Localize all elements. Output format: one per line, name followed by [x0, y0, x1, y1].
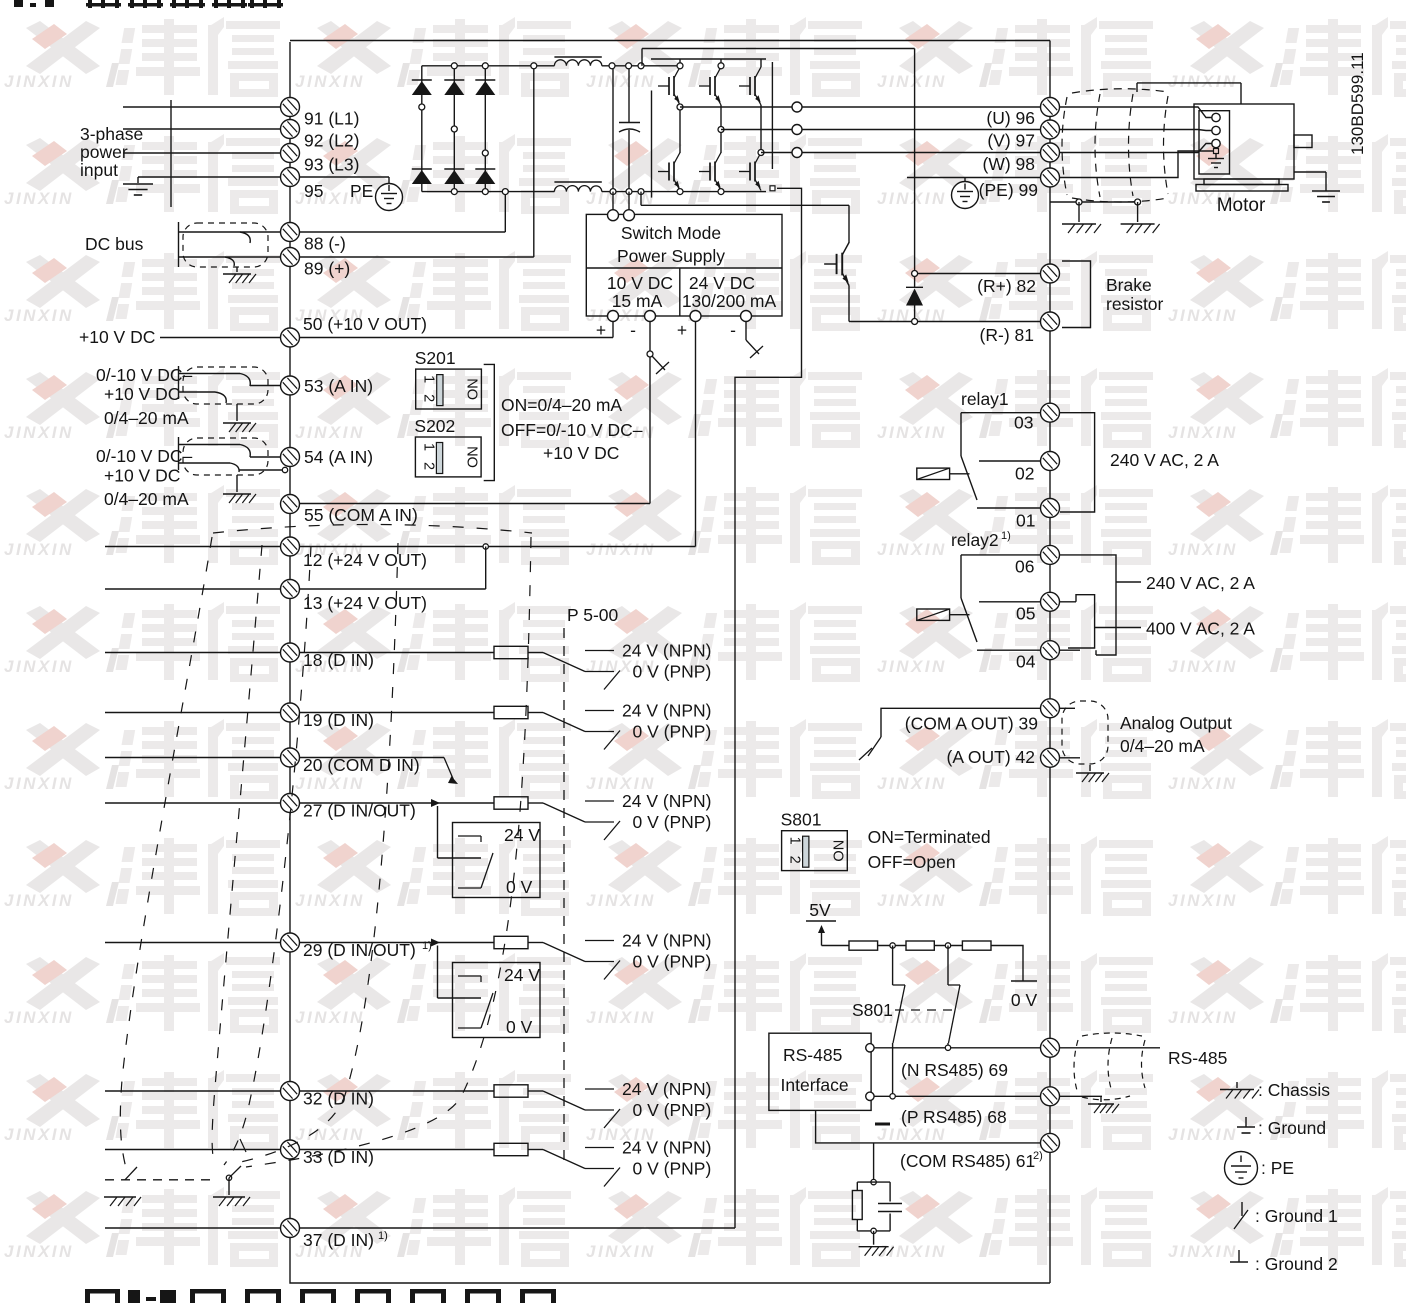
svg-text:S801: S801	[852, 1000, 893, 1020]
svg-text:13 (+24 V OUT): 13 (+24 V OUT)	[303, 593, 427, 613]
svg-text:1): 1)	[1001, 530, 1011, 542]
svg-text:20 (COM D IN): 20 (COM D IN)	[303, 755, 420, 775]
svg-text:24 V (NPN): 24 V (NPN)	[622, 791, 711, 811]
svg-text:PE: PE	[350, 181, 373, 201]
svg-text:(R-) 81: (R-) 81	[980, 325, 1034, 345]
svg-text:1): 1)	[378, 1230, 388, 1242]
svg-text:ON: ON	[832, 840, 848, 862]
svg-text:1: 1	[787, 837, 803, 845]
svg-text:-: -	[630, 320, 636, 340]
svg-text:5V: 5V	[809, 900, 831, 920]
svg-text:89 (+): 89 (+)	[304, 259, 350, 279]
svg-text:relay1: relay1	[961, 389, 1009, 409]
svg-text:: Ground: : Ground	[1258, 1118, 1326, 1138]
svg-text:12 (+24 V OUT): 12 (+24 V OUT)	[303, 550, 427, 570]
svg-text:19 (D IN): 19 (D IN)	[303, 710, 374, 730]
svg-text:RS-485: RS-485	[1168, 1048, 1227, 1068]
svg-text:Analog Output: Analog Output	[1120, 713, 1232, 733]
svg-text:55 (COM A IN): 55 (COM A IN)	[304, 505, 418, 525]
svg-text:OFF=0/-10 V DC–: OFF=0/-10 V DC–	[501, 420, 643, 440]
svg-text:: Ground 2: : Ground 2	[1255, 1254, 1338, 1274]
svg-text:50 (+10 V OUT): 50 (+10 V OUT)	[303, 314, 427, 334]
svg-text:RS-485: RS-485	[783, 1045, 842, 1065]
svg-text:04: 04	[1016, 652, 1036, 672]
svg-text:05: 05	[1016, 604, 1035, 624]
svg-text:+10 V DC: +10 V DC	[79, 327, 155, 347]
svg-text:32 (D IN): 32 (D IN)	[303, 1089, 374, 1109]
svg-text:DC bus: DC bus	[85, 234, 144, 254]
svg-text:93 (L3): 93 (L3)	[304, 155, 359, 175]
svg-text:130/200 mA: 130/200 mA	[682, 291, 777, 311]
svg-text:24 V: 24 V	[504, 825, 540, 845]
svg-text:ON=0/4–20 mA: ON=0/4–20 mA	[501, 395, 622, 415]
svg-text:(P RS485) 68: (P RS485) 68	[901, 1107, 1007, 1127]
svg-text:(R+) 82: (R+) 82	[977, 276, 1036, 296]
svg-text:88 (-): 88 (-)	[304, 234, 346, 254]
svg-text:+: +	[677, 320, 687, 340]
svg-text:OFF=Open: OFF=Open	[868, 852, 956, 872]
svg-text:95: 95	[304, 181, 323, 201]
svg-text:: Chassis: : Chassis	[1258, 1080, 1330, 1100]
svg-text:2): 2)	[1033, 1150, 1043, 1162]
svg-text:Interface: Interface	[781, 1075, 849, 1095]
svg-text:0 V: 0 V	[1011, 990, 1038, 1010]
svg-text:3-phase: 3-phase	[80, 124, 143, 144]
svg-text:130BD599.11: 130BD599.11	[1348, 52, 1367, 155]
svg-text:24 V (NPN): 24 V (NPN)	[622, 1138, 711, 1158]
svg-text:0/4–20 mA: 0/4–20 mA	[104, 408, 189, 428]
svg-text:ON: ON	[465, 446, 481, 468]
svg-text:15 mA: 15 mA	[612, 291, 663, 311]
svg-text:91 (L1): 91 (L1)	[304, 109, 359, 129]
svg-text:1): 1)	[422, 940, 432, 952]
svg-text:relay2: relay2	[951, 530, 999, 550]
svg-text:(COM A OUT) 39: (COM A OUT) 39	[905, 714, 1038, 734]
svg-text:2: 2	[420, 462, 436, 470]
svg-text:Power Supply: Power Supply	[617, 246, 725, 266]
svg-text:92 (L2): 92 (L2)	[304, 131, 359, 151]
svg-text:(N RS485) 69: (N RS485) 69	[901, 1060, 1008, 1080]
svg-text:S801: S801	[781, 810, 822, 830]
svg-text:Brake: Brake	[1106, 275, 1152, 295]
svg-text:33 (D IN): 33 (D IN)	[303, 1147, 374, 1167]
svg-text:01: 01	[1016, 511, 1035, 531]
svg-text:02: 02	[1015, 464, 1034, 484]
svg-text:18 (D IN): 18 (D IN)	[303, 650, 374, 670]
svg-text:27 (D IN/OUT): 27 (D IN/OUT)	[303, 801, 416, 821]
svg-text:24 V (NPN): 24 V (NPN)	[622, 701, 711, 721]
svg-text:54 (A IN): 54 (A IN)	[304, 447, 373, 467]
svg-text:0 V (PNP): 0 V (PNP)	[633, 662, 712, 682]
svg-text:-: -	[730, 320, 736, 340]
svg-text:53 (A IN): 53 (A IN)	[304, 376, 373, 396]
svg-text:+10 V DC: +10 V DC	[104, 466, 180, 486]
svg-text:0 V (PNP): 0 V (PNP)	[633, 952, 712, 972]
svg-text:+10 V DC: +10 V DC	[543, 443, 619, 463]
svg-text:24 V (NPN): 24 V (NPN)	[622, 1079, 711, 1099]
svg-text:(COM RS485) 61: (COM RS485) 61	[900, 1151, 1035, 1171]
svg-text:24 V DC: 24 V DC	[689, 273, 755, 293]
svg-text:(U) 96: (U) 96	[986, 108, 1035, 128]
svg-text:24 V: 24 V	[504, 965, 540, 985]
svg-text:0 V (PNP): 0 V (PNP)	[633, 722, 712, 742]
svg-text:37 (D IN): 37 (D IN)	[303, 1230, 374, 1250]
svg-text:input: input	[80, 160, 118, 180]
svg-text:ON=Terminated: ON=Terminated	[868, 827, 991, 847]
svg-text:Switch Mode: Switch Mode	[621, 223, 721, 243]
svg-text:10 V DC: 10 V DC	[607, 273, 673, 293]
svg-text:(PE) 99: (PE) 99	[979, 180, 1038, 200]
svg-text:1: 1	[420, 443, 436, 451]
svg-text:(W) 98: (W) 98	[983, 154, 1036, 174]
svg-text:0/4–20 mA: 0/4–20 mA	[1120, 736, 1205, 756]
svg-text:power: power	[80, 142, 128, 162]
svg-text:03: 03	[1014, 413, 1033, 433]
svg-text:0 V: 0 V	[506, 1017, 533, 1037]
svg-text:(V) 97: (V) 97	[987, 131, 1035, 151]
svg-text:06: 06	[1015, 557, 1034, 577]
svg-text:Motor: Motor	[1217, 195, 1266, 216]
svg-text:240 V AC, 2 A: 240 V AC, 2 A	[1110, 450, 1219, 470]
svg-text:0/4–20 mA: 0/4–20 mA	[104, 489, 189, 509]
svg-text:2: 2	[421, 394, 437, 402]
svg-text:1: 1	[421, 375, 437, 383]
svg-text:0 V (PNP): 0 V (PNP)	[633, 812, 712, 832]
svg-text:S201: S201	[415, 348, 456, 368]
svg-text:ON: ON	[466, 378, 482, 400]
svg-text:400 V AC, 2 A: 400 V AC, 2 A	[1146, 619, 1255, 639]
svg-text:+10 V DC: +10 V DC	[104, 384, 180, 404]
svg-text:240 V AC, 2 A: 240 V AC, 2 A	[1146, 573, 1255, 593]
svg-text:0 V: 0 V	[506, 877, 533, 897]
svg-text:24 V (NPN): 24 V (NPN)	[622, 931, 711, 951]
svg-text:0 V (PNP): 0 V (PNP)	[633, 1159, 712, 1179]
svg-text:: PE: : PE	[1261, 1158, 1294, 1178]
svg-text:0 V (PNP): 0 V (PNP)	[633, 1100, 712, 1120]
svg-text:2: 2	[787, 856, 803, 864]
svg-text:P 5-00: P 5-00	[567, 605, 619, 625]
svg-text:24 V (NPN): 24 V (NPN)	[622, 641, 711, 661]
svg-text:resistor: resistor	[1106, 294, 1164, 314]
svg-text:S202: S202	[414, 416, 455, 436]
svg-text:29 (D IN/OUT): 29 (D IN/OUT)	[303, 940, 416, 960]
svg-text:: Ground 1: : Ground 1	[1255, 1206, 1338, 1226]
svg-text:(A OUT) 42: (A OUT) 42	[947, 747, 1036, 767]
